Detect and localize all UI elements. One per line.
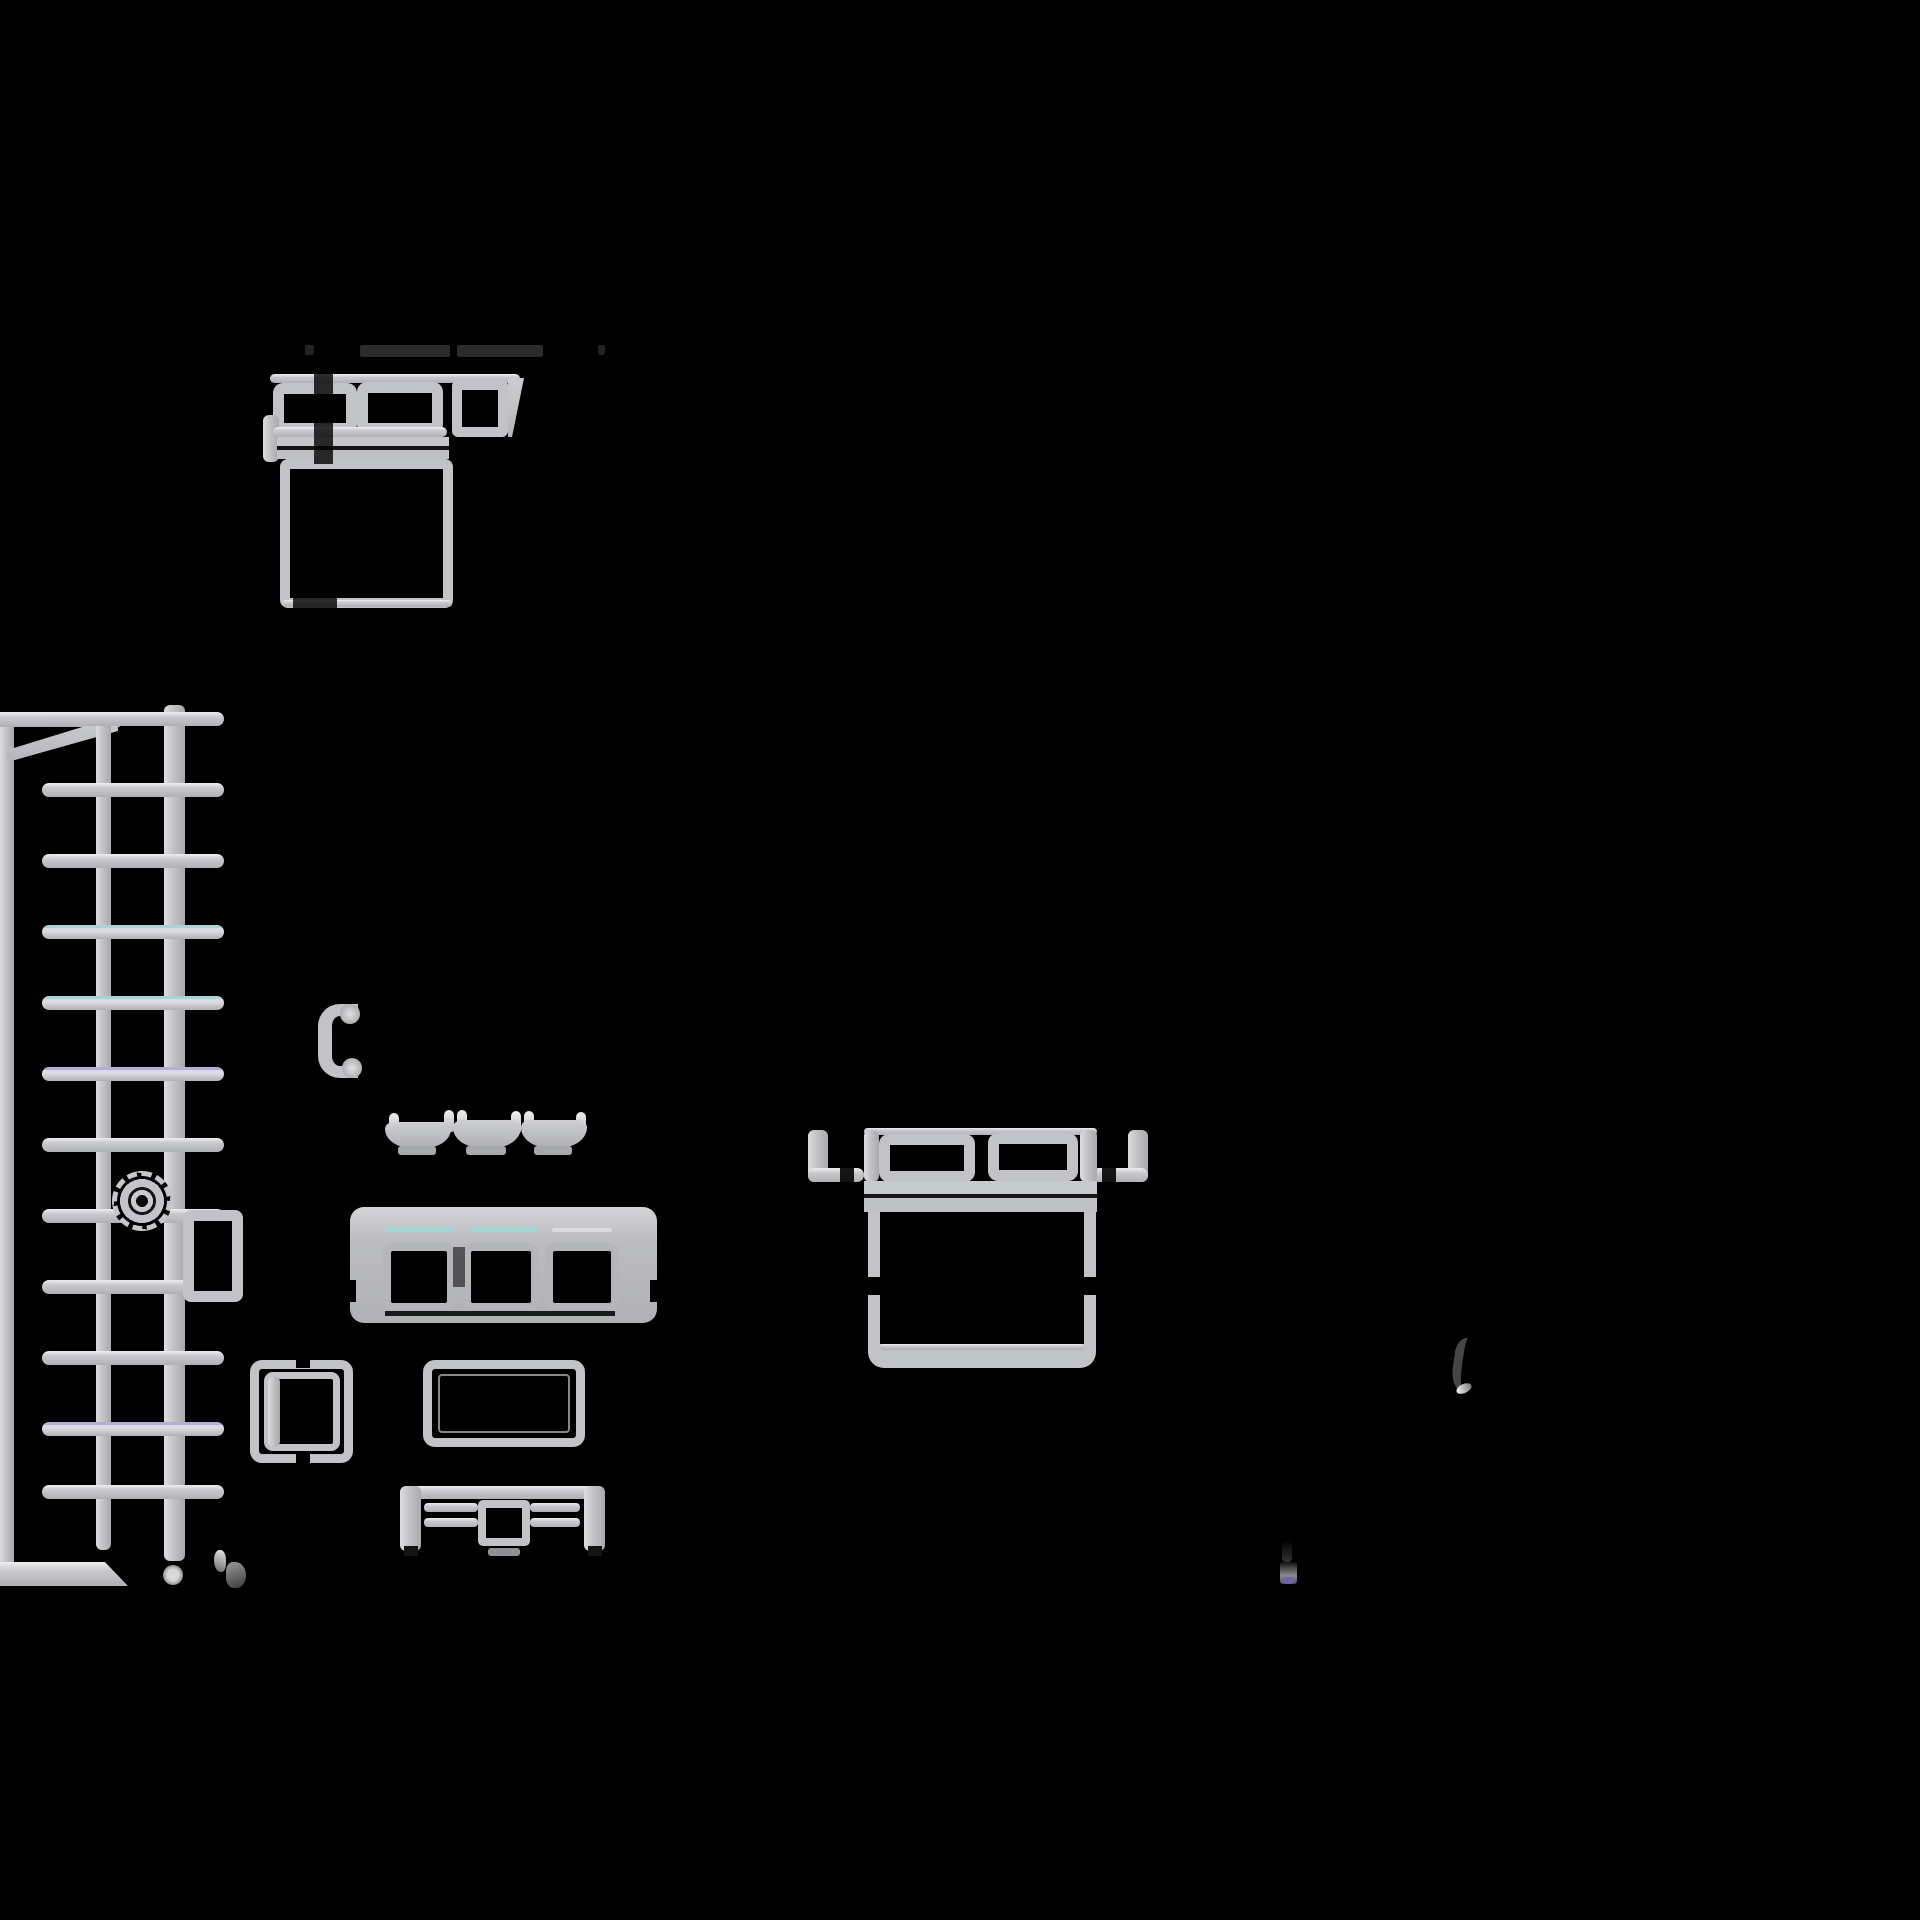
- lattice-rung-1: [42, 712, 224, 726]
- bed-b-post-left: [864, 1130, 879, 1182]
- sofa-front-gap: [385, 1311, 615, 1316]
- garland-tab-1: [398, 1146, 436, 1155]
- sofa-cushion-2: [463, 1243, 539, 1311]
- bracket-knob-bottom: [342, 1058, 362, 1078]
- wall-bottom-bar: [0, 1562, 128, 1586]
- sofa-corner-notch-left: [344, 1280, 356, 1302]
- side-table-notch-bottom: [296, 1452, 310, 1464]
- bed-a-shadow-foot: [293, 598, 337, 614]
- sofa-cushion-3: [545, 1243, 619, 1311]
- bracket-knob-top: [340, 1004, 360, 1024]
- console-top-rail: [404, 1486, 602, 1499]
- comma-mark-1: [214, 1550, 226, 1572]
- garland-tab-3: [534, 1146, 572, 1155]
- sofa-corner-notch-right: [650, 1280, 664, 1302]
- tv-stand-base: [488, 1548, 520, 1556]
- bed-right: [800, 1120, 1160, 1380]
- console-shelf-left-2: [424, 1518, 478, 1527]
- tv-icon: [478, 1500, 530, 1546]
- sofa-back-accent-1: [385, 1227, 453, 1232]
- shelving-lattice: [0, 700, 260, 1600]
- bed-b-blanket-band: [864, 1181, 1097, 1212]
- garland-tab-2: [466, 1146, 506, 1155]
- lattice-side-box: [183, 1210, 243, 1302]
- bed-top-left: [250, 340, 550, 630]
- floor-plan-canvas: [0, 0, 1920, 1920]
- lattice-rung-3: [42, 854, 224, 868]
- garland: [380, 1105, 595, 1160]
- lattice-rung-7: [42, 1138, 224, 1152]
- bed-a-front-rail: [273, 427, 447, 437]
- console-shelf-right-1: [530, 1503, 580, 1512]
- lattice-rung-11: [42, 1422, 224, 1436]
- label-smudge-tick-2: [598, 345, 605, 355]
- tv-console: [398, 1484, 608, 1560]
- lattice-foot-caster: [163, 1565, 183, 1585]
- purple-dot-smoke: [1282, 1540, 1292, 1562]
- lattice-rung-5: [42, 996, 224, 1010]
- fan-gear-icon: [112, 1171, 172, 1231]
- wall-vertical: [0, 712, 14, 1586]
- garland-swag-3: [521, 1120, 587, 1148]
- sofa: [350, 1207, 657, 1323]
- lattice-rung-2: [42, 783, 224, 797]
- lattice-rung-12: [42, 1485, 224, 1499]
- purple-dot-icon: [1283, 1577, 1294, 1584]
- console-shelf-left-1: [424, 1503, 478, 1512]
- bed-b-hook-right-h: [1092, 1168, 1148, 1182]
- bed-b-hook-gap-left: [840, 1168, 854, 1182]
- lattice-rung-6: [42, 1067, 224, 1081]
- sofa-divider-shadow: [453, 1247, 465, 1287]
- bed-b-pillow-2: [988, 1133, 1078, 1181]
- comma-mark-2: [226, 1562, 246, 1588]
- bed-a-open-square: [452, 380, 508, 437]
- side-table-inner-bar: [268, 1376, 280, 1447]
- bed-a-folded-corner: [508, 378, 524, 437]
- bed-b-rail-notch-left: [862, 1277, 886, 1295]
- console-leg-left: [400, 1486, 421, 1551]
- lattice-rung-10: [42, 1351, 224, 1365]
- bed-b-pillow-1: [879, 1134, 975, 1182]
- garland-swag-2: [453, 1120, 521, 1148]
- bed-b-rail-notch-right: [1078, 1277, 1102, 1295]
- garland-swag-1: [385, 1122, 451, 1148]
- lattice-rung-4: [42, 925, 224, 939]
- console-leg-right: [584, 1486, 605, 1551]
- bed-a-shadow-column: [314, 342, 333, 464]
- bed-a-blanket-band: [277, 437, 449, 459]
- coffee-table-inner: [438, 1374, 570, 1433]
- console-foot-right: [588, 1546, 602, 1556]
- console-shelf-right-2: [530, 1518, 580, 1527]
- sofa-back-accent-2: [470, 1227, 537, 1232]
- bed-b-hook-gap-right: [1102, 1168, 1116, 1182]
- bed-b-hook-left-h: [808, 1168, 864, 1182]
- sofa-cushion-1: [383, 1243, 455, 1311]
- bed-b-post-right: [1080, 1130, 1097, 1182]
- console-foot-left: [404, 1546, 418, 1556]
- bed-a-body: [280, 459, 453, 608]
- bed-b-foot-highlight: [880, 1344, 1084, 1350]
- sofa-back-accent-3: [552, 1228, 612, 1232]
- side-table-notch-top: [296, 1356, 310, 1368]
